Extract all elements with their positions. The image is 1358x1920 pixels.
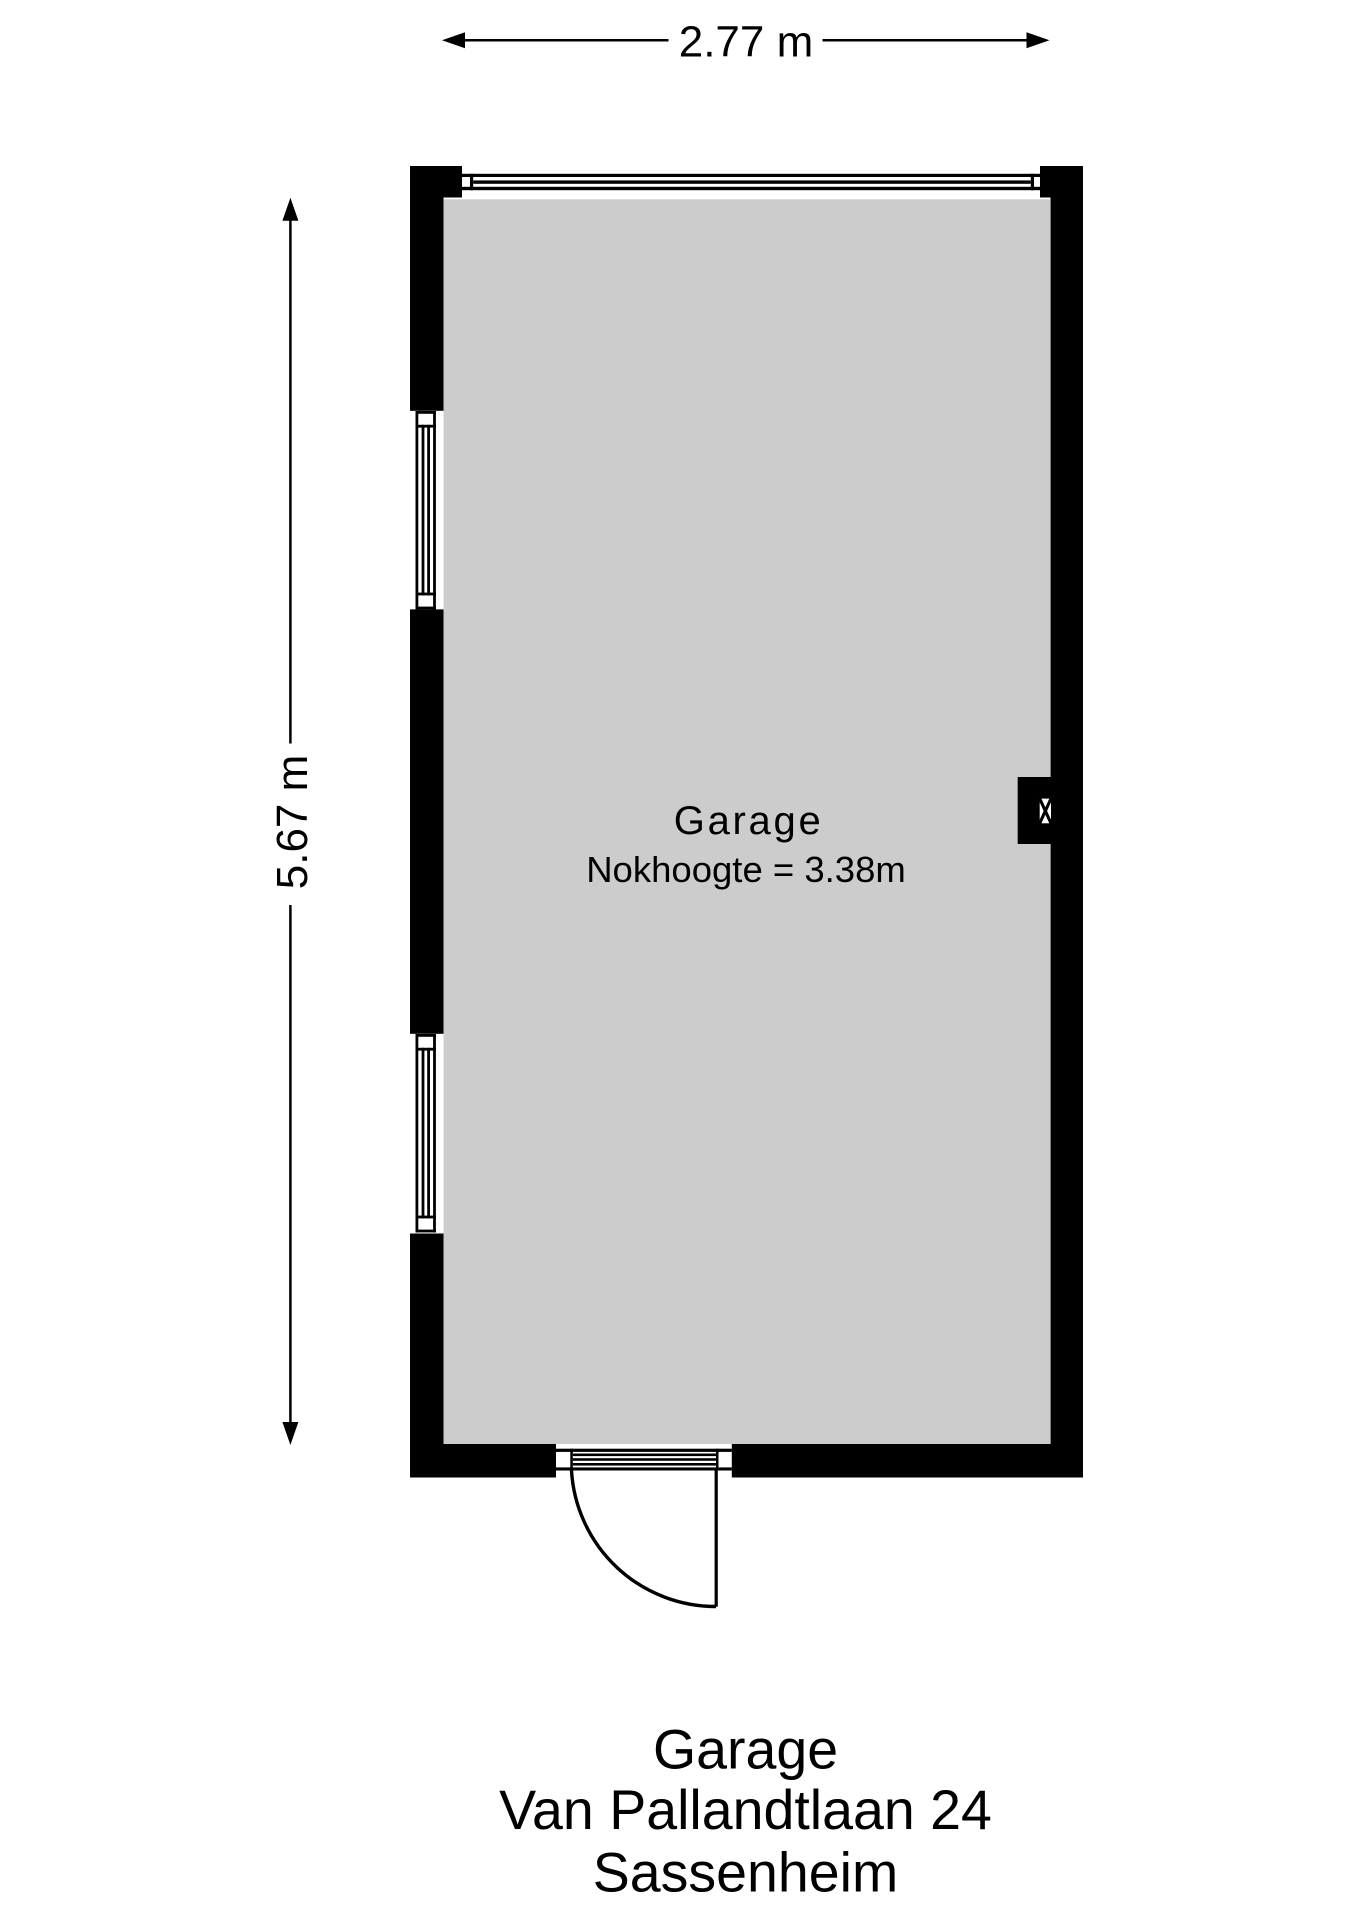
svg-text:5.67 m: 5.67 m (268, 755, 317, 890)
svg-text:Nokhoogte = 3.38m: Nokhoogte = 3.38m (586, 849, 906, 890)
svg-text:Garage: Garage (653, 1719, 838, 1781)
svg-text:Sassenheim: Sassenheim (593, 1842, 898, 1904)
svg-text:2.77 m: 2.77 m (679, 18, 814, 67)
svg-text:Van Pallandtlaan 24: Van Pallandtlaan 24 (499, 1779, 992, 1841)
svg-text:Garage: Garage (674, 799, 824, 843)
